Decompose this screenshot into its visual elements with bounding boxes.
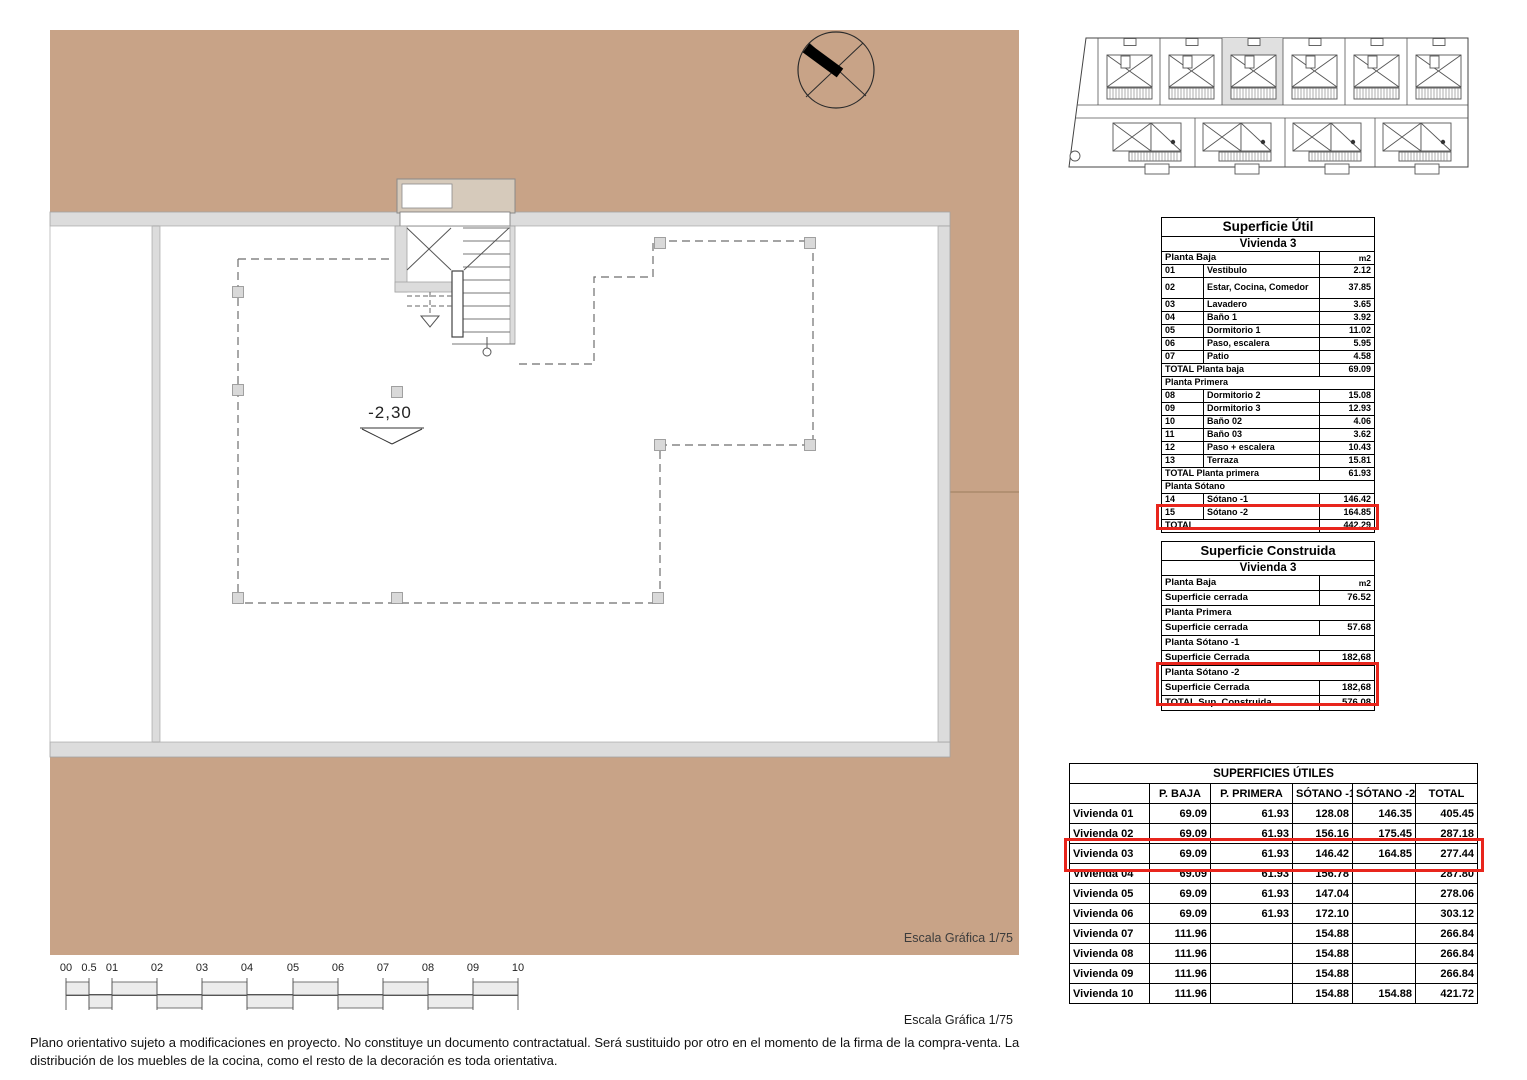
table-title: Superficie Construida (1162, 542, 1375, 561)
table-row: Vivienda 0169.0961.93128.08146.35405.45 (1070, 804, 1478, 824)
scale-bar-label: 09 (460, 962, 486, 974)
table-row: Vivienda 10111.96154.88154.88421.72 (1070, 984, 1478, 1004)
table-row: 08Dormitorio 215.08 (1162, 390, 1375, 403)
table-row: 05Dormitorio 111.02 (1162, 325, 1375, 338)
table-section-row: Planta Sótano -1 (1162, 636, 1375, 651)
table-row: Superficie cerrada76.52 (1162, 591, 1375, 606)
table-row: Vivienda 0669.0961.93172.10303.12 (1070, 904, 1478, 924)
table-header-row: P. BAJA P. PRIMERA SÓTANO -1 SÓTANO -2 T… (1070, 784, 1478, 804)
footer-scale-label: Escala Gráfica 1/75 (843, 1013, 1013, 1027)
table-total-row: TOTAL442.29 (1162, 520, 1375, 533)
scale-bar-label: 05 (280, 962, 306, 974)
table-row: 11Baño 033.62 (1162, 429, 1375, 442)
table-row: Superficie cerrada57.68 (1162, 621, 1375, 636)
table-subtitle-row: Vivienda 3 (1162, 561, 1375, 576)
scale-bar-label: 01 (99, 962, 125, 974)
scale-bar-label: 04 (234, 962, 260, 974)
table-title-row: SUPERFICIES ÚTILES (1070, 764, 1478, 784)
scale-bar-label: 02 (144, 962, 170, 974)
table-title: Superficie Útil (1162, 218, 1375, 237)
superficie-util-table: Superficie Útil Vivienda 3 Planta Baja m… (1161, 217, 1375, 533)
table-row: Vivienda 07111.96154.88266.84 (1070, 924, 1478, 944)
disclaimer-line-1: Plano orientativo sujeto a modificacione… (30, 1035, 1030, 1050)
disclaimer-line-2: distribución de los muebles de la cocina… (30, 1053, 1030, 1068)
scale-bar-label: 06 (325, 962, 351, 974)
scale-bar-label: 03 (189, 962, 215, 974)
table-row: 09Dormitorio 312.93 (1162, 403, 1375, 416)
table-row: Vivienda 08111.96154.88266.84 (1070, 944, 1478, 964)
table-row-highlighted: Vivienda 0369.0961.93146.42164.85277.44 (1070, 844, 1478, 864)
table-total-row: TOTAL Planta baja69.09 (1162, 364, 1375, 377)
superficies-utiles-table: SUPERFICIES ÚTILES P. BAJA P. PRIMERA SÓ… (1069, 763, 1478, 1004)
table-row: 04Baño 13.92 (1162, 312, 1375, 325)
site-plan (1069, 38, 1468, 174)
table-row: 10Baño 024.06 (1162, 416, 1375, 429)
table-section-row: Planta Primera (1162, 606, 1375, 621)
table-row: 02Estar, Cocina, Comedor37.85 (1162, 278, 1375, 299)
table-row: Vivienda 09111.96154.88266.84 (1070, 964, 1478, 984)
table-title-row: Superficie Construida (1162, 542, 1375, 561)
table-row: 07Patio4.58 (1162, 351, 1375, 364)
scale-bar-label: 10 (505, 962, 531, 974)
scale-bar-graphic (66, 978, 518, 1010)
stair-bulkhead (397, 179, 515, 213)
table-section-row-highlighted: Planta Sótano -2 (1162, 666, 1375, 681)
plan-sheet: -2,30 Escala Gráfica 1/75 Escala Gráfica… (0, 0, 1527, 1080)
plan-scale-label: Escala Gráfica 1/75 (843, 931, 1013, 945)
table-title-row: Superficie Útil (1162, 218, 1375, 237)
table-row-highlighted: Superficie Cerrada182,68 (1162, 681, 1375, 696)
table-row: 01Vestibulo2.12 (1162, 265, 1375, 278)
table-section-row: Planta Sótano (1162, 481, 1375, 494)
table-total-row: TOTAL Planta primera61.93 (1162, 468, 1375, 481)
table-header-row: Planta Baja m2 (1162, 576, 1375, 591)
table-row: 13Terraza15.81 (1162, 455, 1375, 468)
table-row: Vivienda 0469.0961.93156.78287.80 (1070, 864, 1478, 884)
table-row-highlighted: 15Sótano -2164.85 (1162, 507, 1375, 520)
table-row: Vivienda 0569.0961.93147.04278.06 (1070, 884, 1478, 904)
scale-bar-label: 07 (370, 962, 396, 974)
table-row: 14Sótano -1146.42 (1162, 494, 1375, 507)
table-total-row: TOTAL Sup. Construida576.08 (1162, 696, 1375, 711)
table-section-row: Planta Primera (1162, 377, 1375, 390)
level-label: -2,30 (354, 403, 426, 423)
table-subtitle: Vivienda 3 (1162, 561, 1375, 576)
excavation-interior (50, 226, 938, 742)
table-row: Vivienda 0269.0961.93156.16175.45287.18 (1070, 824, 1478, 844)
scale-bar-label: 08 (415, 962, 441, 974)
table-header-row: Planta Baja m2 (1162, 252, 1375, 265)
table-title: SUPERFICIES ÚTILES (1070, 764, 1478, 784)
table-row: 06Paso, escalera5.95 (1162, 338, 1375, 351)
superficie-construida-table: Superficie Construida Vivienda 3 Planta … (1161, 541, 1375, 711)
table-row: 12Paso + escalera10.43 (1162, 442, 1375, 455)
table-row: 03Lavadero3.65 (1162, 299, 1375, 312)
table-subtitle-row: Vivienda 3 (1162, 237, 1375, 252)
table-row: Superficie Cerrada182,68 (1162, 651, 1375, 666)
table-subtitle: Vivienda 3 (1162, 237, 1375, 252)
